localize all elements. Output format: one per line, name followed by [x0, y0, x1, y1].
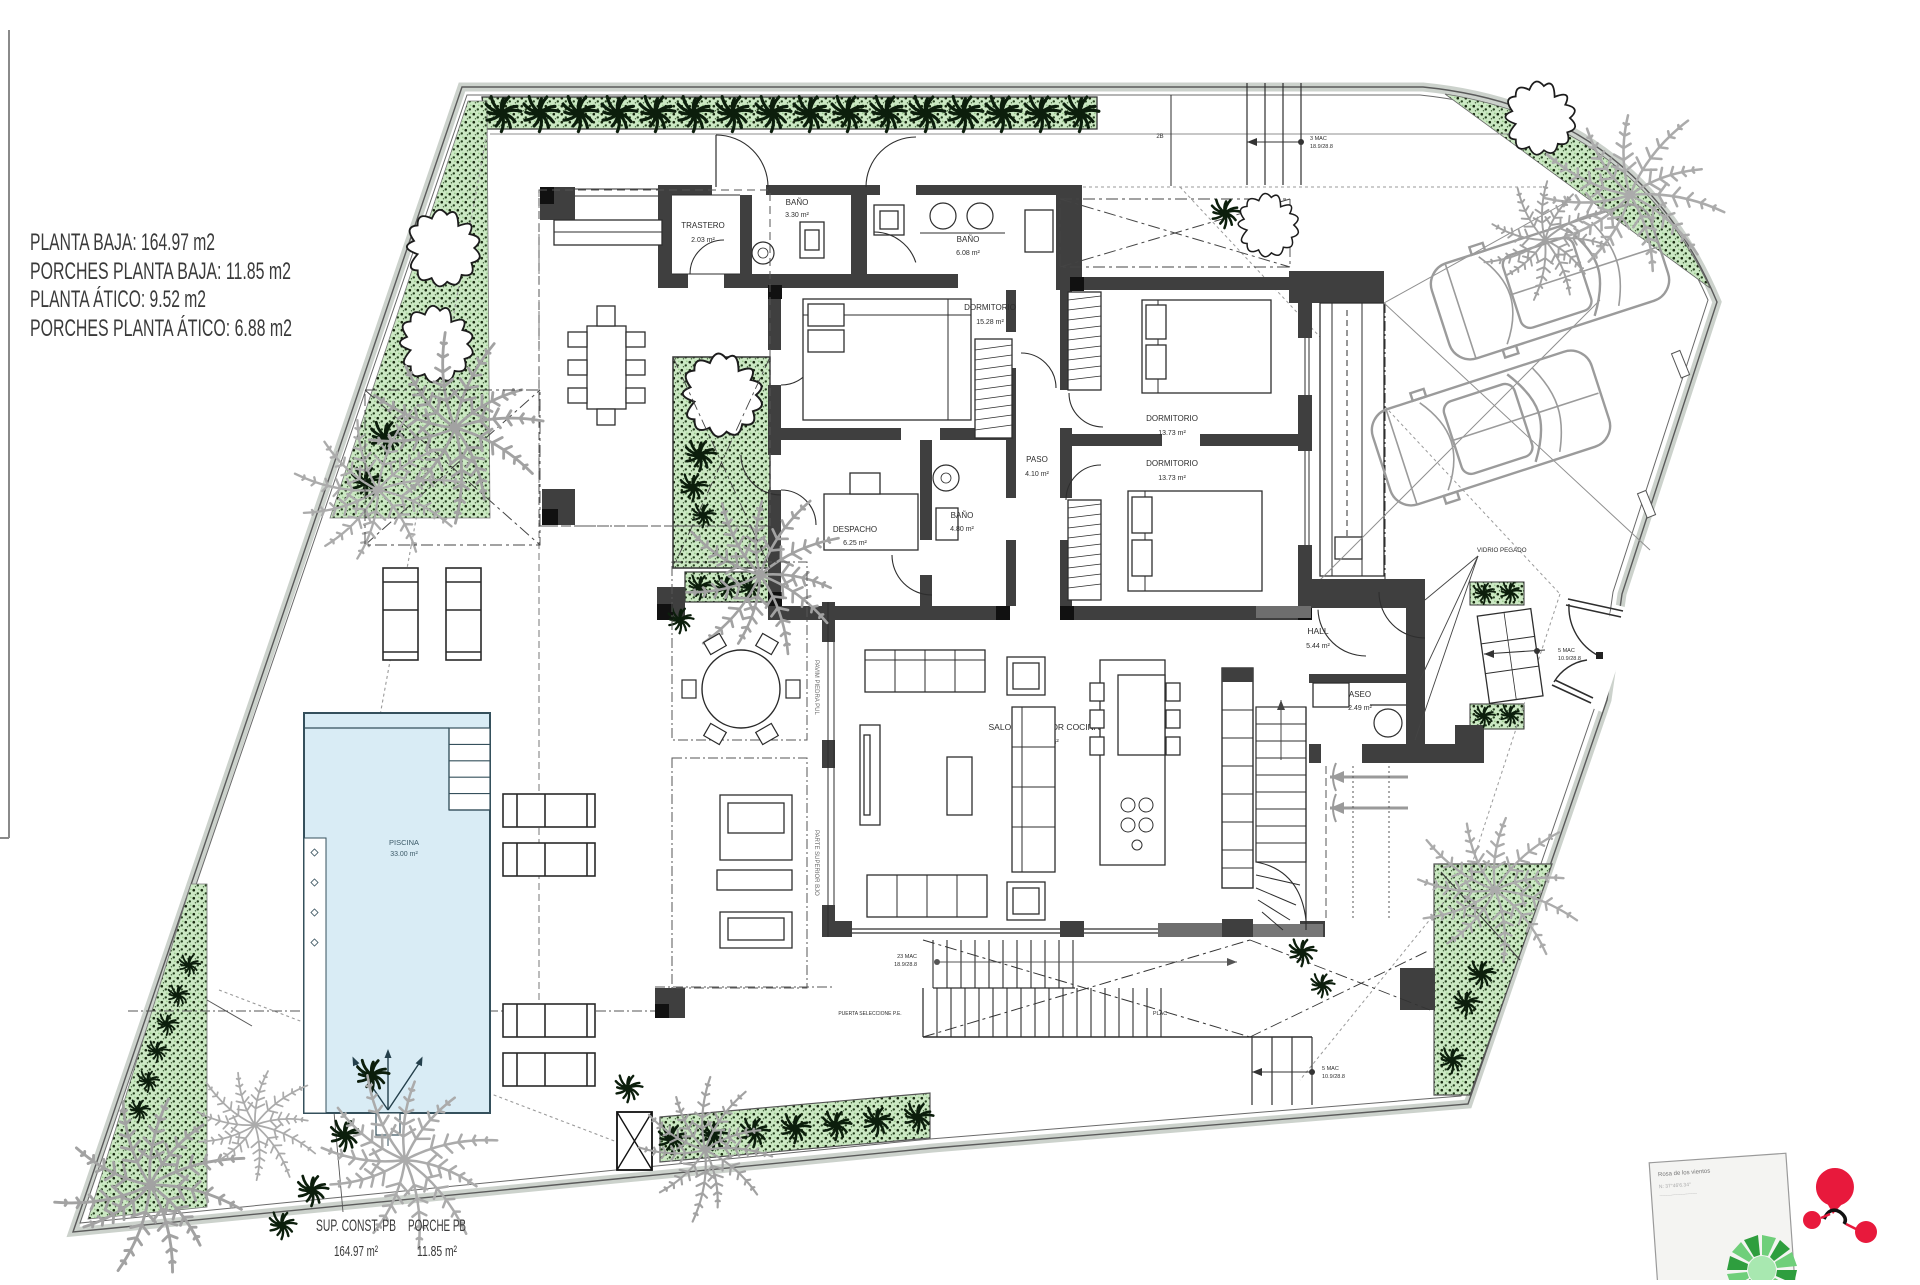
svg-text:PORCHES PLANTA ÁTICO: 6.88 m2: PORCHES PLANTA ÁTICO: 6.88 m2 [30, 315, 292, 342]
svg-text:2.49 m²: 2.49 m² [1348, 705, 1372, 712]
svg-text:18.9/28.8: 18.9/28.8 [1310, 144, 1333, 150]
svg-text:BAÑO: BAÑO [957, 235, 980, 244]
svg-text:4.80 m²: 4.80 m² [950, 526, 974, 533]
svg-text:33.00 m²: 33.00 m² [390, 851, 418, 858]
svg-text:PLAC: PLAC [1153, 1011, 1167, 1017]
svg-text:DESPACHO: DESPACHO [833, 525, 877, 534]
svg-text:2.03 m²: 2.03 m² [691, 237, 715, 244]
svg-text:2B: 2B [1156, 134, 1163, 140]
svg-text:13.73 m²: 13.73 m² [1158, 430, 1186, 437]
svg-text:ASEO: ASEO [1349, 690, 1371, 699]
svg-text:PUERTA SELECCIONE P.E.: PUERTA SELECCIONE P.E. [838, 1011, 901, 1017]
svg-text:10.9/28.8: 10.9/28.8 [1558, 656, 1581, 662]
svg-text:15.28 m²: 15.28 m² [976, 319, 1004, 326]
svg-text:23 MAC: 23 MAC [897, 954, 917, 960]
svg-text:TRASTERO: TRASTERO [681, 221, 725, 230]
svg-text:DORMITORIO: DORMITORIO [1146, 459, 1198, 468]
svg-text:SUP. CONST. PB: SUP. CONST. PB [316, 1216, 396, 1235]
svg-text:6.08 m²: 6.08 m² [956, 250, 980, 257]
svg-text:PLANTA BAJA: 164.97 m2: PLANTA BAJA: 164.97 m2 [30, 229, 215, 256]
svg-text:PARTE SUPERIOR BJO: PARTE SUPERIOR BJO [813, 830, 819, 896]
svg-text:PORCHES PLANTA BAJA: 11.85 m2: PORCHES PLANTA BAJA: 11.85 m2 [30, 258, 291, 285]
svg-text:VIDRIO PEGADO: VIDRIO PEGADO [1477, 547, 1527, 554]
svg-text:6.25 m²: 6.25 m² [843, 540, 867, 547]
svg-text:3 MAC: 3 MAC [1310, 136, 1327, 142]
svg-text:5 MAC: 5 MAC [1322, 1066, 1339, 1072]
svg-text:3.30 m²: 3.30 m² [785, 212, 809, 219]
svg-text:5.44 m²: 5.44 m² [1306, 643, 1330, 650]
svg-text:13.73 m²: 13.73 m² [1158, 475, 1186, 482]
svg-text:PASO: PASO [1026, 455, 1048, 464]
svg-text:18.9/28.8: 18.9/28.8 [894, 962, 917, 968]
svg-text:164.97 m²: 164.97 m² [334, 1243, 378, 1260]
svg-text:PLANTA ÁTICO: 9.52 m2: PLANTA ÁTICO: 9.52 m2 [30, 286, 206, 313]
svg-text:PORCHE PB: PORCHE PB [408, 1216, 466, 1235]
svg-text:10.9/28.8: 10.9/28.8 [1322, 1074, 1345, 1080]
svg-text:4.10 m²: 4.10 m² [1025, 471, 1049, 478]
svg-text:DORMITORIO: DORMITORIO [1146, 414, 1198, 423]
svg-text:DORMITORIO: DORMITORIO [964, 303, 1016, 312]
svg-text:PAVIM PIEDRA PUL: PAVIM PIEDRA PUL [813, 660, 819, 715]
svg-text:11.85 m²: 11.85 m² [417, 1243, 457, 1260]
svg-text:PISCINA: PISCINA [389, 838, 419, 847]
svg-text:5 MAC: 5 MAC [1558, 648, 1575, 654]
svg-text:BAÑO: BAÑO [786, 198, 809, 207]
svg-text:BAÑO: BAÑO [951, 511, 974, 520]
